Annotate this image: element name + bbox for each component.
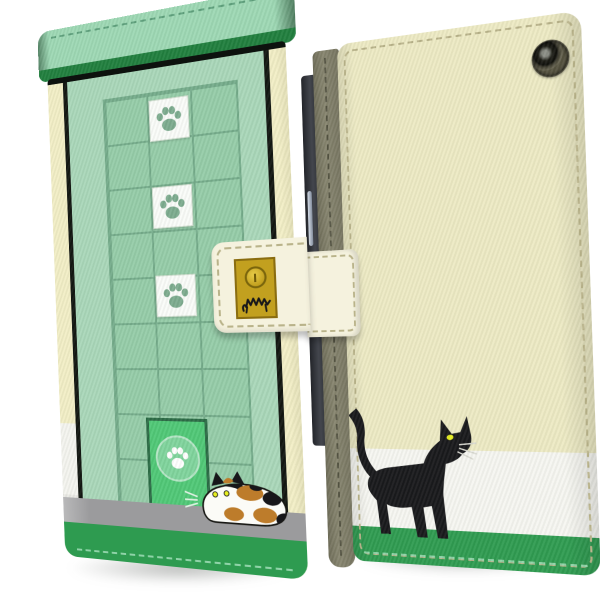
strap-back-segment [305,249,361,337]
strap-clasp [211,237,311,333]
paw-icon [158,192,188,221]
snap-button-icon [244,266,267,289]
paw-icon [161,282,191,310]
scribble-cat-icon [240,293,272,315]
paw-tile [148,95,190,142]
product-photo [0,0,600,600]
paw-tile [155,274,197,318]
camera-hole-icon [531,37,570,79]
whiskers [184,491,198,509]
cat-eye [213,492,218,498]
black-cat [343,402,482,557]
flap-stitching [51,0,277,39]
paw-icon [154,103,184,134]
volume-button-icon [307,191,313,246]
case-front-view [42,0,315,585]
cat-eye [224,491,229,497]
calico-cat [184,465,295,532]
case-back-view [298,8,600,590]
strap-gold-plate [234,257,278,319]
paw-tile [152,184,194,229]
case-back-panel [337,10,600,576]
